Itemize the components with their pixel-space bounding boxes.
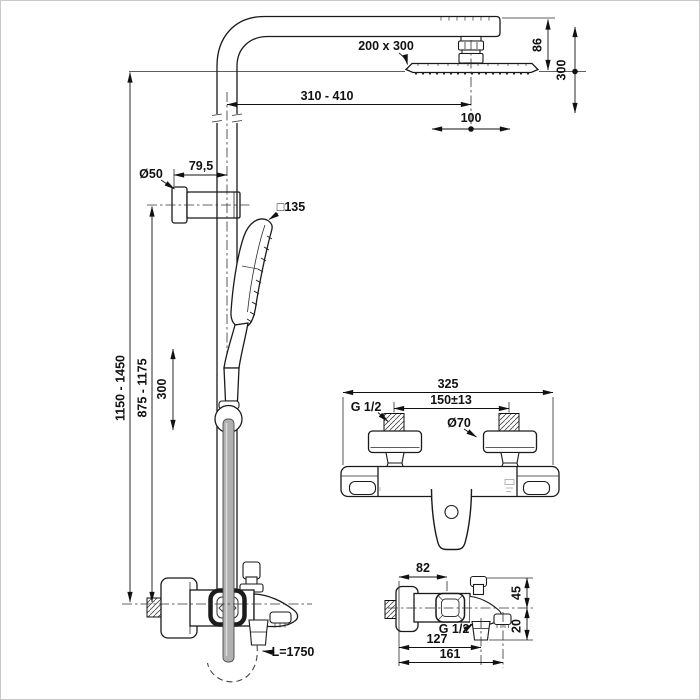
right-escutcheon xyxy=(484,431,537,453)
spout-hole xyxy=(445,506,458,519)
dim-inlet-centers: 150±13 xyxy=(430,393,472,407)
dim-overall-depth: 161 xyxy=(440,647,461,661)
dim-bracket-height: 875 - 1175 xyxy=(136,358,150,417)
spout-aerator xyxy=(270,612,291,623)
dim-overall-height: 1150 - 1450 xyxy=(114,355,128,421)
dim-inlet-thread: G 1/2 xyxy=(351,400,382,414)
hose-outlet xyxy=(249,620,268,645)
temperature-handle-button xyxy=(350,482,376,495)
shower-system-technical-drawing: 200 x 300 86 300 310 - 410 100 1150 - 14… xyxy=(0,0,700,700)
dim-slide-range: 300 xyxy=(155,379,169,400)
dim-vertical-travel: 300 xyxy=(555,60,569,81)
hand-shower-neck xyxy=(224,323,248,368)
right-inlet-thread xyxy=(499,414,519,432)
page-border xyxy=(1,1,700,700)
rain-head xyxy=(406,64,538,75)
column-mixer xyxy=(147,562,298,645)
dim-hose-length: L=1750 xyxy=(272,645,315,659)
dim-flange-to-outlet: 127 xyxy=(427,632,448,646)
mixer-front-view: 325 150±13 G 1/2 Ø70 xyxy=(341,377,559,550)
dim-below-center: 20 xyxy=(510,619,524,633)
dim-head-size: 200 x 300 xyxy=(358,39,414,53)
dim-escutcheon-diameter: Ø70 xyxy=(447,416,471,430)
dim-bracket-diameter: Ø50 xyxy=(139,167,163,181)
wall-stub xyxy=(147,598,161,617)
dim-handspray-size: □135 xyxy=(277,200,305,214)
front-spout xyxy=(432,489,472,550)
flow-handle-button xyxy=(524,482,550,495)
dim-arm-reach: 310 - 410 xyxy=(301,89,354,103)
left-inlet-thread xyxy=(384,414,404,432)
mixer-side-view: 82 45 20 G 1/2 127 161 xyxy=(385,561,534,668)
side-spout-aerator xyxy=(494,614,511,625)
dim-flange-to-diverter: 82 xyxy=(416,561,430,575)
side-wall-stub xyxy=(385,601,397,619)
dimensions-column: 1150 - 1450 875 - 1175 300 Ø50 79,5 □135… xyxy=(114,73,315,660)
left-escutcheon xyxy=(369,431,422,453)
dim-above-center: 45 xyxy=(510,586,524,600)
dim-head-height: 86 xyxy=(531,38,545,52)
dim-bracket-offset: 79,5 xyxy=(189,159,213,173)
hand-shower-handle xyxy=(224,368,239,401)
shower-hose-tube xyxy=(223,419,234,662)
dim-horizontal-travel: 100 xyxy=(461,111,482,125)
technical-drawing-page: 200 x 300 86 300 310 - 410 100 1150 - 14… xyxy=(0,0,700,700)
dim-mixer-width: 325 xyxy=(438,377,459,391)
